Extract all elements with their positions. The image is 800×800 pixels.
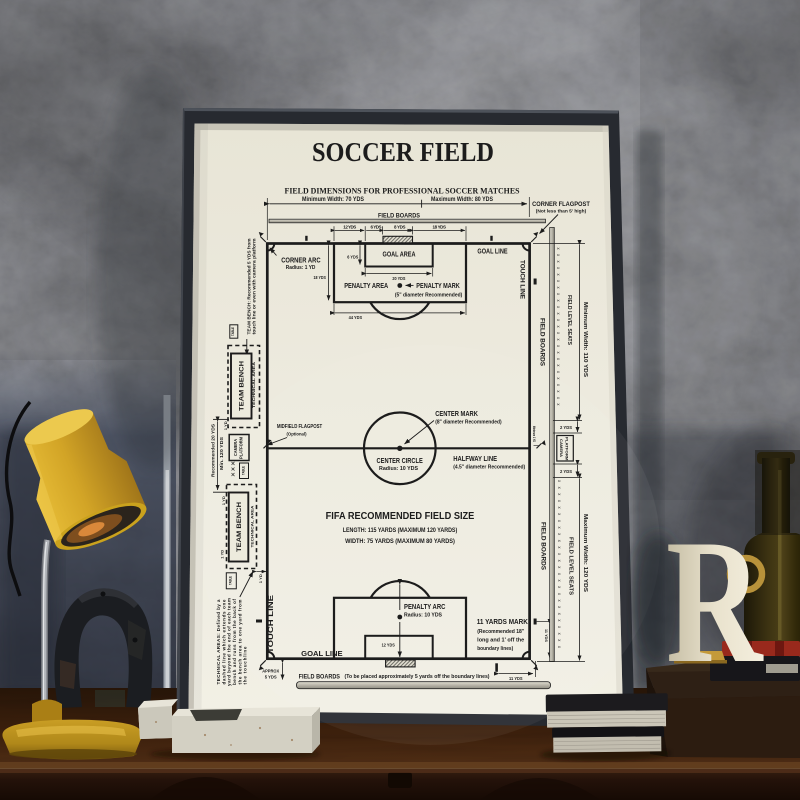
svg-text:PLATFORM: PLATFORM [239, 437, 244, 459]
svg-text:Min. 120 YDS: Min. 120 YDS [219, 437, 224, 470]
svg-text:1 YD: 1 YD [220, 549, 224, 559]
svg-text:touch line or even with camera: touch line or even with camera platform [252, 238, 257, 334]
svg-text:1 YD: 1 YD [222, 496, 226, 506]
svg-text:(To be placed approximately 5: (To be placed approximately 5 yards off … [345, 674, 490, 680]
svg-text:TEAM BENCH: TEAM BENCH [239, 360, 246, 411]
svg-text:dashed line which extends one: dashed line which extends one [221, 599, 226, 684]
svg-text:(8" diameter Recommended): (8" diameter Recommended) [435, 419, 502, 425]
svg-text:R: R [666, 504, 764, 701]
svg-text:5 YDS: 5 YDS [265, 675, 277, 680]
svg-text:WIDTH: 75 YARDS (MAXIMUM 80 YA: WIDTH: 75 YARDS (MAXIMUM 80 YARDS) [345, 538, 455, 545]
svg-text:1 YD: 1 YD [259, 574, 263, 584]
svg-text:PENALTY AREA: PENALTY AREA [344, 281, 388, 290]
svg-text:TECHNICAL AREA: TECHNICAL AREA [252, 362, 256, 408]
svg-text:CAMERA: CAMERA [559, 439, 564, 457]
svg-text:PENALTY MARK: PENALTY MARK [416, 281, 460, 290]
svg-text:11 YARDS MARK: 11 YARDS MARK [477, 617, 529, 626]
svg-text:Minimum 1 YD: Minimum 1 YD [532, 426, 536, 442]
svg-text:(Optional): (Optional) [287, 431, 307, 436]
svg-text:Minimum Width: 110 YDS: Minimum Width: 110 YDS [582, 302, 588, 377]
svg-text:TOUCH LINE: TOUCH LINE [266, 595, 275, 653]
svg-text:2 YDS: 2 YDS [560, 469, 572, 474]
svg-text:18 YDS: 18 YDS [433, 225, 447, 230]
svg-text:PENALTY ARC: PENALTY ARC [404, 602, 445, 611]
svg-text:CAMERA: CAMERA [233, 439, 238, 456]
svg-text:Radius: 1 YD: Radius: 1 YD [286, 265, 316, 271]
svg-text:Minimum Width: 70 YDS: Minimum Width: 70 YDS [302, 197, 364, 203]
svg-text:6 YDS: 6 YDS [371, 225, 382, 230]
svg-text:2 YDS: 2 YDS [560, 425, 572, 430]
svg-text:SOCCER FIELD: SOCCER FIELD [312, 137, 494, 167]
svg-text:FIELD LEVEL SEATS: FIELD LEVEL SEATS [568, 537, 574, 595]
svg-text:FIELD BOARDS: FIELD BOARDS [299, 673, 341, 680]
svg-text:(4.5" diameter Recommended): (4.5" diameter Recommended) [453, 465, 525, 471]
svg-text:FIELD BOARDS: FIELD BOARDS [539, 318, 546, 367]
svg-text:11 YDS: 11 YDS [544, 629, 549, 642]
svg-text:GOAL LINE: GOAL LINE [477, 246, 507, 255]
svg-text:1 YD: 1 YD [224, 421, 228, 431]
svg-text:FIELD LEVEL SEATS: FIELD LEVEL SEATS [566, 295, 572, 345]
svg-text:CORNER FLAGPOST: CORNER FLAGPOST [532, 202, 590, 208]
svg-text:FIELD BOARDS: FIELD BOARDS [540, 522, 547, 571]
svg-text:FIELD DIMENSIONS FOR PROFESSIO: FIELD DIMENSIONS FOR PROFESSIONAL SOCCER… [285, 186, 520, 196]
svg-text:CENTER MARK: CENTER MARK [435, 409, 478, 418]
svg-text:TABLE: TABLE [229, 576, 233, 585]
svg-text:HALFWAY LINE: HALFWAY LINE [453, 454, 497, 463]
svg-text:GOAL AREA: GOAL AREA [383, 250, 416, 259]
svg-text:long and 1' off the: long and 1' off the [477, 638, 524, 644]
svg-text:yard beyond the end of each te: yard beyond the end of each team [227, 598, 232, 686]
svg-text:12 YDS: 12 YDS [343, 225, 356, 230]
svg-text:(Recommended 18": (Recommended 18" [477, 629, 524, 635]
svg-text:LENGTH: 115 YARDS (MAXIMUM 120: LENGTH: 115 YARDS (MAXIMUM 120 YARDS) [343, 527, 458, 534]
svg-text:11 YDS: 11 YDS [509, 676, 523, 681]
svg-text:the touchline: the touchline [243, 646, 248, 684]
svg-text:GOAL LINE: GOAL LINE [301, 649, 343, 658]
svg-text:(Not less than 5' high): (Not less than 5' high) [536, 209, 587, 214]
svg-text:boundary lines): boundary lines) [477, 646, 513, 652]
svg-text:(5" diameter Recommended): (5" diameter Recommended) [395, 292, 463, 298]
svg-text:Radius: 10 YDS: Radius: 10 YDS [404, 613, 442, 619]
svg-text:8 YDS: 8 YDS [394, 225, 406, 230]
svg-text:Radius: 10 YDS: Radius: 10 YDS [379, 466, 418, 472]
svg-text:18 YDS: 18 YDS [313, 275, 326, 280]
svg-text:FIFA RECOMMENDED FIELD SIZE: FIFA RECOMMENDED FIELD SIZE [326, 511, 475, 522]
svg-text:44 YDS: 44 YDS [349, 315, 363, 320]
svg-text:CENTER CIRCLE: CENTER CIRCLE [377, 456, 423, 465]
svg-text:12 YDS: 12 YDS [382, 643, 395, 648]
svg-text:FIELD BOARDS: FIELD BOARDS [378, 212, 420, 219]
svg-text:CORNER ARC: CORNER ARC [281, 255, 321, 264]
svg-text:TECHNICAL AREA: TECHNICAL AREA [251, 505, 255, 547]
svg-text:TECHNICAL AREAS: Defined by a: TECHNICAL AREAS: Defined by a [216, 599, 221, 684]
svg-text:TABLE: TABLE [241, 466, 245, 475]
svg-text:APPROX: APPROX [262, 668, 279, 673]
svg-text:TEAM BENCH: TEAM BENCH [236, 501, 243, 552]
svg-text:TABLE: TABLE [231, 327, 235, 336]
svg-text:MIDFIELD FLAGPOST: MIDFIELD FLAGPOST [277, 424, 323, 430]
svg-text:TOUCH LINE: TOUCH LINE [519, 260, 526, 299]
svg-text:Maximum Width: 80 YDS: Maximum Width: 80 YDS [431, 197, 493, 203]
svg-text:Maximum Width: 120 YDS: Maximum Width: 120 YDS [582, 514, 588, 592]
svg-text:20 YDS: 20 YDS [392, 276, 405, 281]
svg-text:6 YDS: 6 YDS [347, 254, 358, 259]
svg-text:PLATFORM: PLATFORM [564, 437, 569, 461]
svg-text:Recommended 20 YDS: Recommended 20 YDS [210, 424, 215, 477]
svg-text:the bench area to one yard fro: the bench area to one yard from [237, 600, 242, 685]
svg-text:bench and runs from the back o: bench and runs from the back of [232, 599, 237, 685]
svg-text:X X X: X X X [231, 461, 236, 476]
